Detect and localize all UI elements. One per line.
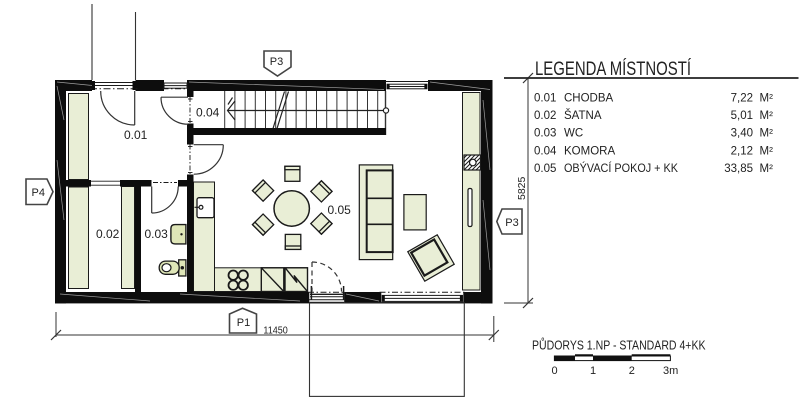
svg-text:WC: WC <box>564 128 583 140</box>
svg-text:1: 1 <box>590 365 596 377</box>
svg-text:CHODBA: CHODBA <box>564 93 614 105</box>
svg-text:P3: P3 <box>270 56 283 68</box>
svg-text:P4: P4 <box>32 187 45 199</box>
svg-text:2: 2 <box>629 365 635 377</box>
svg-text:P1: P1 <box>237 317 250 329</box>
svg-text:0.01: 0.01 <box>534 93 556 105</box>
svg-text:0.04: 0.04 <box>196 106 220 120</box>
svg-text:0: 0 <box>552 365 558 377</box>
svg-text:M²: M² <box>760 128 774 140</box>
svg-text:LEGENDA MÍSTNOSTÍ: LEGENDA MÍSTNOSTÍ <box>535 57 691 80</box>
svg-text:0.01: 0.01 <box>124 128 148 142</box>
svg-text:OBÝVACÍ POKOJ + KK: OBÝVACÍ POKOJ + KK <box>564 162 678 175</box>
svg-text:0.03: 0.03 <box>145 227 169 241</box>
svg-text:0.05: 0.05 <box>534 163 556 175</box>
svg-text:3,40: 3,40 <box>731 128 753 140</box>
svg-text:11450: 11450 <box>263 326 288 337</box>
svg-text:0.03: 0.03 <box>534 128 556 140</box>
svg-text:2,12: 2,12 <box>731 146 753 158</box>
svg-text:0.02: 0.02 <box>96 227 120 241</box>
svg-text:0.04: 0.04 <box>534 146 557 158</box>
svg-text:33,85: 33,85 <box>724 163 753 175</box>
svg-text:M²: M² <box>760 93 774 105</box>
svg-text:0.05: 0.05 <box>328 203 352 217</box>
svg-text:M²: M² <box>760 146 774 158</box>
svg-text:ŠATNA: ŠATNA <box>564 109 602 122</box>
svg-text:PŮDORYS 1.NP - STANDARD 4+KK: PŮDORYS 1.NP - STANDARD 4+KK <box>532 338 706 353</box>
svg-text:5,01: 5,01 <box>731 110 753 122</box>
svg-text:5825: 5825 <box>516 176 528 200</box>
svg-text:M²: M² <box>760 110 774 122</box>
svg-text:7,22: 7,22 <box>731 93 753 105</box>
svg-text:P3: P3 <box>505 217 518 229</box>
svg-text:0.02: 0.02 <box>534 110 556 122</box>
svg-text:KOMORA: KOMORA <box>564 146 615 158</box>
svg-text:3m: 3m <box>663 365 678 377</box>
svg-text:M²: M² <box>760 163 774 175</box>
